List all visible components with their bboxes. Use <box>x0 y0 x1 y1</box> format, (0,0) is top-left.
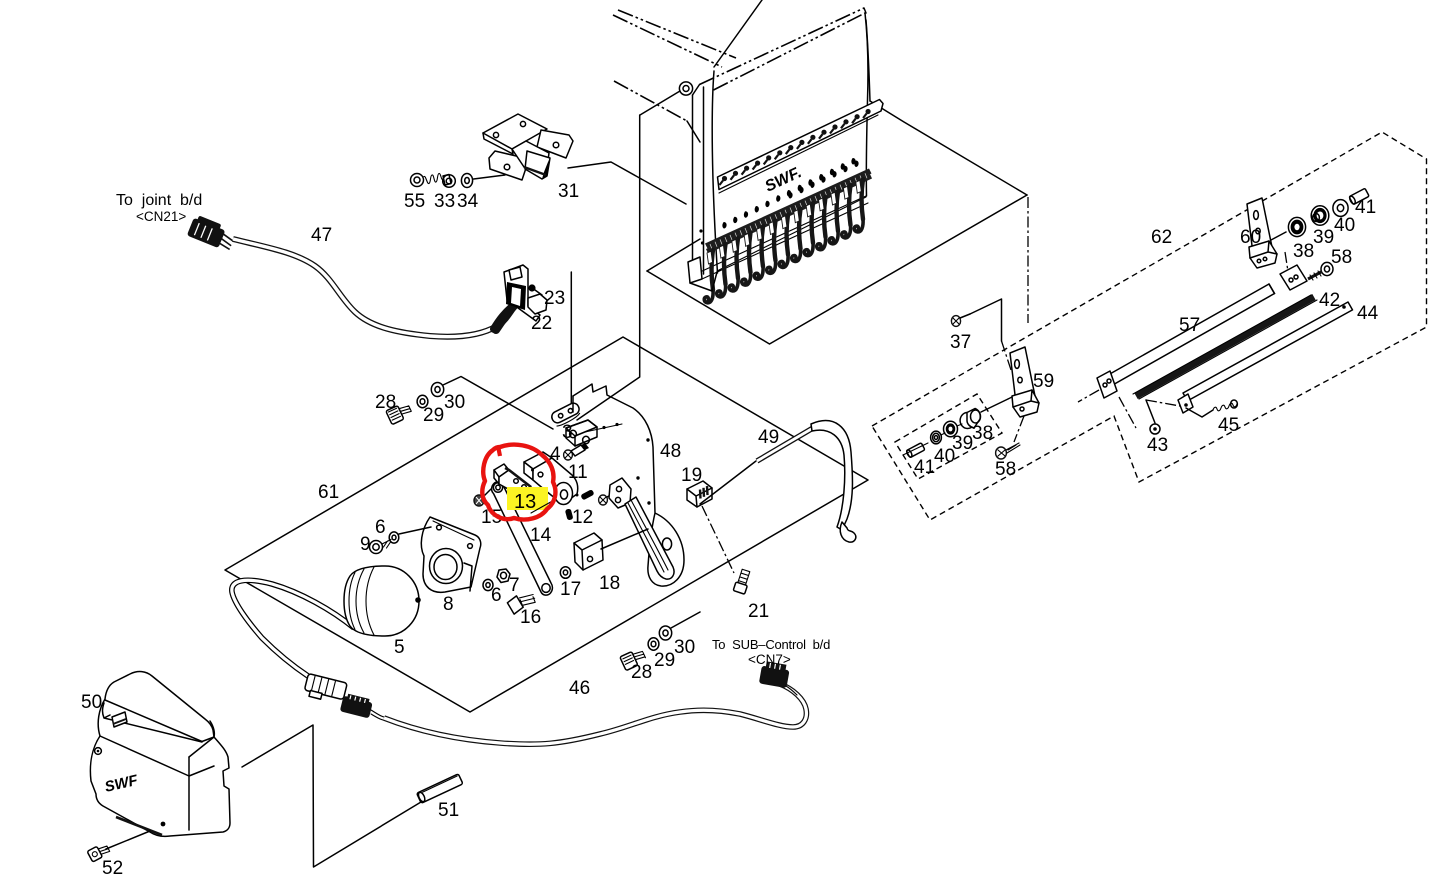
svg-text:4: 4 <box>550 444 561 465</box>
svg-text:17: 17 <box>560 579 581 600</box>
svg-text:16: 16 <box>520 607 541 628</box>
svg-text:39: 39 <box>952 433 973 454</box>
svg-text:58: 58 <box>995 459 1016 480</box>
svg-text:50: 50 <box>81 692 102 713</box>
svg-text:28: 28 <box>375 392 396 413</box>
svg-text:13: 13 <box>514 491 536 513</box>
svg-text:55: 55 <box>404 191 425 212</box>
svg-text:<CN21>: <CN21> <box>136 209 186 224</box>
svg-text:61: 61 <box>318 482 339 503</box>
svg-text:59: 59 <box>1033 371 1054 392</box>
svg-text:60: 60 <box>1240 227 1261 248</box>
svg-text:12: 12 <box>572 507 593 528</box>
svg-text:3: 3 <box>562 422 573 443</box>
svg-text:40: 40 <box>1334 215 1355 236</box>
svg-text:22: 22 <box>531 313 552 334</box>
svg-text:43: 43 <box>1147 435 1168 456</box>
svg-text:47: 47 <box>311 225 332 246</box>
svg-text:29: 29 <box>654 650 675 671</box>
svg-text:28: 28 <box>631 662 652 683</box>
svg-text:<CN7>: <CN7> <box>748 652 791 667</box>
svg-text:6: 6 <box>375 517 386 538</box>
svg-text:30: 30 <box>444 392 465 413</box>
svg-text:51: 51 <box>438 800 459 821</box>
svg-text:52: 52 <box>102 858 123 878</box>
svg-text:21: 21 <box>748 601 769 622</box>
svg-text:14: 14 <box>530 525 552 546</box>
svg-text:46: 46 <box>569 678 590 699</box>
svg-text:9: 9 <box>360 534 371 555</box>
svg-text:41: 41 <box>1355 197 1376 218</box>
svg-text:23: 23 <box>544 288 565 309</box>
svg-text:29: 29 <box>423 405 444 426</box>
svg-text:8: 8 <box>443 594 454 615</box>
svg-text:To SUB–Control b/d: To SUB–Control b/d <box>712 637 830 652</box>
svg-text:58: 58 <box>1331 247 1352 268</box>
svg-text:5: 5 <box>394 637 405 658</box>
svg-text:19: 19 <box>681 465 702 486</box>
svg-text:33: 33 <box>434 191 455 212</box>
svg-text:57: 57 <box>1179 315 1200 336</box>
svg-text:To joint b/d: To joint b/d <box>116 192 202 209</box>
svg-text:41: 41 <box>914 457 935 478</box>
svg-text:30: 30 <box>674 637 695 658</box>
svg-text:49: 49 <box>758 427 779 448</box>
svg-text:11: 11 <box>568 462 588 483</box>
svg-text:6: 6 <box>491 585 502 606</box>
svg-text:18: 18 <box>599 573 620 594</box>
svg-text:31: 31 <box>558 181 579 202</box>
svg-text:7: 7 <box>509 575 520 596</box>
svg-text:48: 48 <box>660 441 681 462</box>
svg-text:38: 38 <box>972 423 993 444</box>
svg-text:62: 62 <box>1151 227 1172 248</box>
svg-text:38: 38 <box>1293 241 1314 262</box>
svg-text:34: 34 <box>457 191 479 212</box>
svg-text:39: 39 <box>1313 227 1334 248</box>
svg-text:44: 44 <box>1357 303 1379 324</box>
svg-text:37: 37 <box>950 332 971 353</box>
svg-text:45: 45 <box>1218 415 1239 436</box>
